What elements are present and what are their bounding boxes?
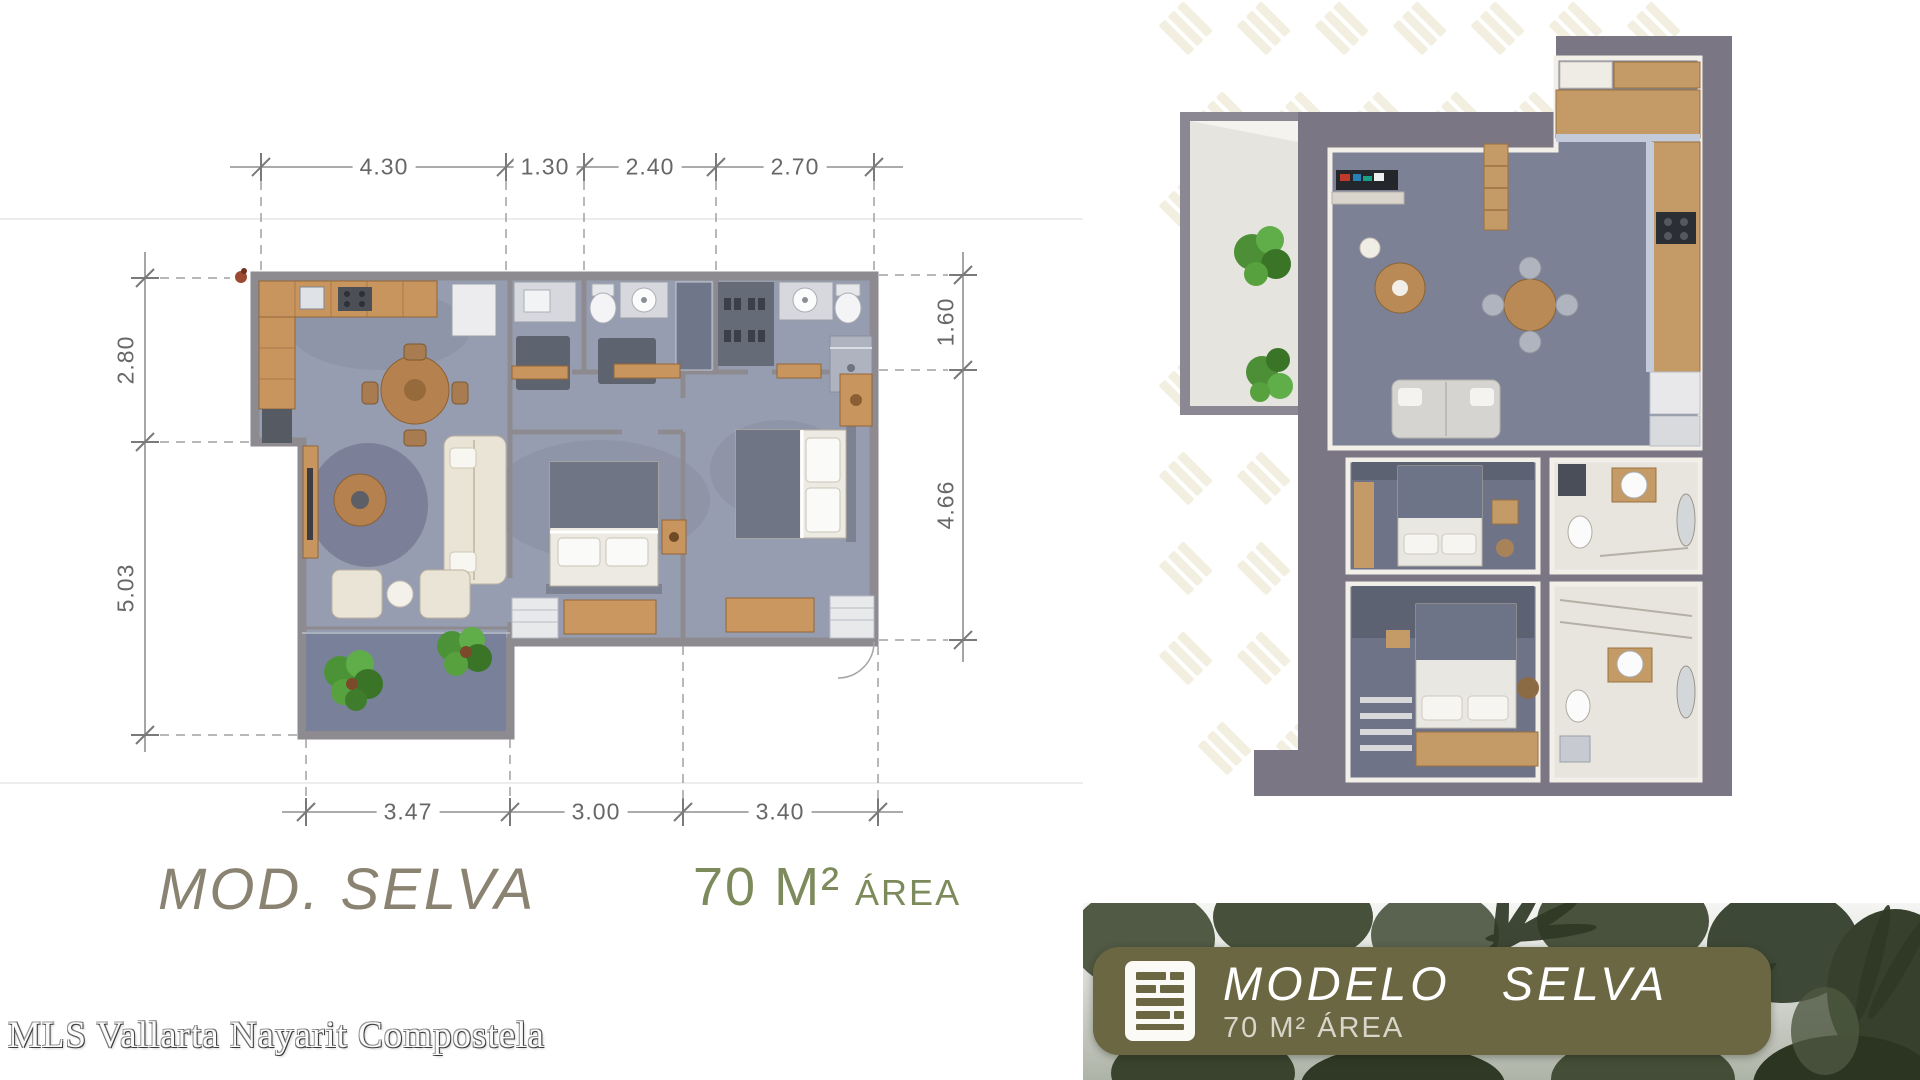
plan-title: MOD. SELVA bbox=[158, 856, 536, 923]
dim-left-2: 5.03 bbox=[113, 557, 138, 620]
dim-left-1: 2.80 bbox=[113, 329, 138, 392]
dim-right-1: 1.60 bbox=[933, 291, 958, 354]
page: { "page": { "background": "#ffffff" }, "… bbox=[0, 0, 1920, 1080]
dim-right-2: 4.66 bbox=[933, 474, 958, 537]
brand-logo-bars bbox=[1134, 970, 1186, 1032]
dim-bottom-3: 3.40 bbox=[749, 799, 812, 824]
watermark-text: MLS Vallarta Nayarit Compostela bbox=[8, 1014, 545, 1057]
plan-area: 70 M² ÁREA bbox=[693, 856, 961, 918]
dim-bottom-2: 3.00 bbox=[565, 799, 628, 824]
dim-top-3: 2.40 bbox=[619, 154, 682, 179]
render-bathroom-2 bbox=[1552, 584, 1700, 780]
render-bedroom-1 bbox=[1348, 460, 1538, 572]
dim-top-2: 1.30 bbox=[514, 154, 577, 179]
banner: MODELO SELVA 70 M² ÁREA bbox=[1083, 903, 1920, 1080]
floorplan-2d bbox=[235, 268, 874, 735]
plan-area-value: 70 M² bbox=[693, 856, 841, 918]
plan-area-unit: ÁREA bbox=[855, 872, 961, 914]
render-bathroom-1 bbox=[1552, 460, 1700, 572]
banner-subtitle: 70 M² ÁREA bbox=[1223, 1014, 1668, 1043]
dim-top-1: 4.30 bbox=[353, 154, 416, 179]
brand-logo-icon bbox=[1125, 961, 1195, 1041]
banner-texts: MODELO SELVA 70 M² ÁREA bbox=[1223, 960, 1668, 1043]
banner-title: MODELO SELVA bbox=[1223, 960, 1668, 1007]
dim-bottom-1: 3.47 bbox=[377, 799, 440, 824]
banner-panel: MODELO SELVA 70 M² ÁREA bbox=[1093, 947, 1771, 1055]
dim-top-4: 2.70 bbox=[764, 154, 827, 179]
render-bedroom-2 bbox=[1348, 584, 1539, 780]
render-balcony bbox=[1180, 112, 1300, 415]
